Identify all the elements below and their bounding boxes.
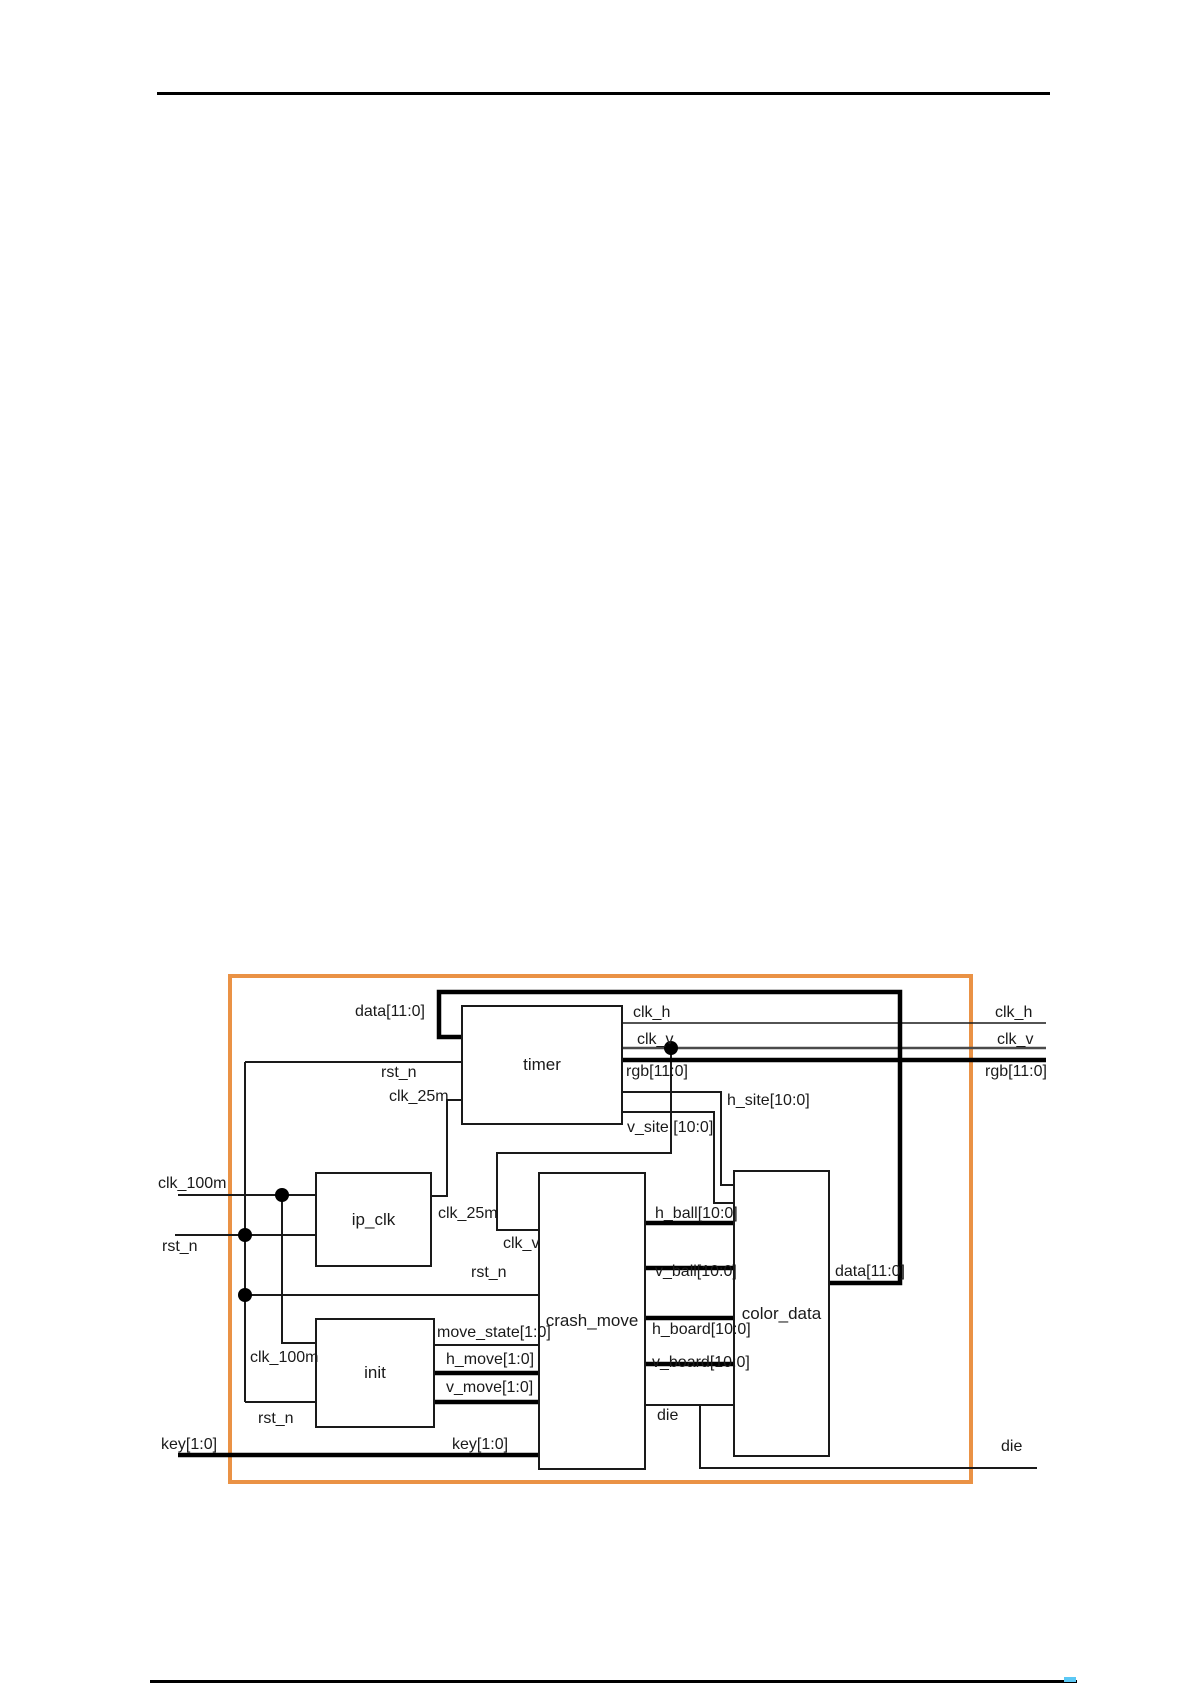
module-block-crash_move: crash_move	[538, 1172, 646, 1470]
wire-junction-dot	[238, 1228, 252, 1242]
clk_25m-wire	[432, 1100, 461, 1196]
wire-junction-dot	[275, 1188, 289, 1202]
v_board-label: v_board[10:0]	[652, 1354, 750, 1371]
module-label-color_data: color_data	[742, 1304, 821, 1324]
module-block-color_data: color_data	[733, 1170, 830, 1457]
module-block-init: init	[315, 1318, 435, 1428]
clk_v-label-out: clk_v	[997, 1031, 1033, 1048]
cursor-artifact	[1064, 1677, 1076, 1682]
rst_n-label-init: rst_n	[258, 1410, 294, 1427]
clk_100m-branch	[282, 1195, 315, 1343]
footer-rule	[150, 1680, 1077, 1683]
rst_n-label-crash: rst_n	[471, 1264, 507, 1281]
clk_100m-label-init: clk_100m	[250, 1349, 318, 1366]
key-label-in: key[1:0]	[161, 1436, 217, 1453]
v_ball-label: v_ball[10:0]	[655, 1263, 737, 1280]
clk_v-label-in: clk_v	[637, 1031, 673, 1048]
wire-junction-dot	[238, 1288, 252, 1302]
rst_n-label-timer: rst_n	[381, 1064, 417, 1081]
module-label-timer: timer	[523, 1055, 561, 1075]
module-label-crash_move: crash_move	[546, 1311, 639, 1331]
clk_h-label-in: clk_h	[633, 1004, 670, 1021]
die-label-out: die	[1001, 1438, 1022, 1455]
die-label-inner: die	[657, 1407, 678, 1424]
document-page: timerip_clkinitcrash_movecolor_data data…	[0, 0, 1192, 1685]
data-label-timer: data[11:0]	[355, 1003, 425, 1020]
move_state-label: move_state[1:0]	[437, 1324, 551, 1341]
module-label-ip_clk: ip_clk	[352, 1210, 395, 1230]
h_board-label: h_board[10:0]	[652, 1321, 751, 1338]
data-label-colordata: data[11:0]	[835, 1263, 905, 1280]
clk_h-label-out: clk_h	[995, 1004, 1032, 1021]
h_site-label: h_site[10:0]	[727, 1092, 810, 1109]
rgb-label-in: rgb[11:0]	[626, 1063, 688, 1080]
h_move-label: h_move[1:0]	[446, 1351, 534, 1368]
clk_v-label-crash: clk_v	[503, 1235, 539, 1252]
clk_25m-label-ipclk: clk_25m	[438, 1205, 498, 1222]
module-block-timer: timer	[461, 1005, 623, 1125]
rst_n-label-in: rst_n	[162, 1238, 198, 1255]
module-block-ip_clk: ip_clk	[315, 1172, 432, 1267]
h_ball-label: h_ball[10:0]	[655, 1205, 738, 1222]
module-label-init: init	[364, 1363, 386, 1383]
clk_25m-label-timer: clk_25m	[389, 1088, 449, 1105]
key-label-crash: key[1:0]	[452, 1436, 508, 1453]
clk_100m-label-in: clk_100m	[158, 1175, 226, 1192]
rgb-label-out: rgb[11:0]	[985, 1063, 1047, 1080]
v_site-label: v_site [10:0]	[627, 1119, 713, 1136]
v_move-label: v_move[1:0]	[446, 1379, 533, 1396]
